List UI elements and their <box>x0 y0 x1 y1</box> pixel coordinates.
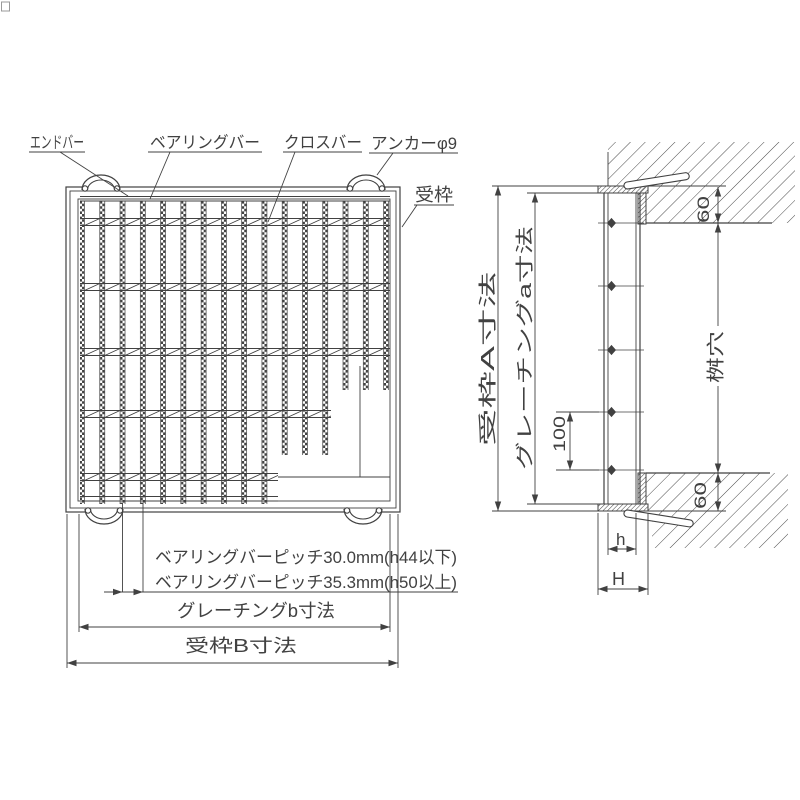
label-anchor: アンカーφ9 <box>371 135 457 153</box>
frame-outline <box>66 187 400 512</box>
dim-frame-b: 受枠B寸法 <box>185 636 297 656</box>
anchor-handle-icon <box>347 175 385 191</box>
label-frame: 受枠 <box>415 185 453 205</box>
anchor-handle-icon <box>344 508 382 524</box>
dim-grating-b: グレーチングb寸法 <box>177 601 335 621</box>
dim-frame-height: H <box>612 569 625 589</box>
dim-pit-opening: 桝穴 <box>706 331 726 383</box>
dim-frame-a: 受枠A寸法 <box>478 271 498 446</box>
note-pitch-small: ベアリングバーピッチ30.0mm(h44以下) <box>155 548 457 567</box>
dim-seat-bottom: 60 <box>691 482 710 509</box>
page-corner-mark <box>2 2 10 11</box>
grating-technical-drawing: エンドバー ベアリングバー クロスバー アンカーφ9 受枠 ベアリングバーピッチ… <box>0 0 800 800</box>
plan-dimensions: ベアリングバーピッチ30.0mm(h44以下) ベアリングバーピッチ35.3mm… <box>67 503 458 668</box>
section-view: 受枠A寸法 グレーチングa寸法 100 60 桝穴 60 h H <box>478 142 795 595</box>
label-cross-bar: クロスバー <box>284 133 362 152</box>
section-crossbar-marks <box>598 219 644 475</box>
dim-anchor-spacing: 100 <box>550 416 569 452</box>
dim-grating-a: グレーチングa寸法 <box>515 226 535 470</box>
label-bearing-bar: ベアリングバー <box>150 133 260 152</box>
anchor-handles <box>82 175 385 524</box>
grating-pattern <box>80 197 391 505</box>
label-end-bar: エンドバー <box>30 134 84 152</box>
anchor-handle-icon <box>82 175 120 191</box>
anchor-handle-icon <box>85 508 123 524</box>
dim-seat-top: 60 <box>694 196 713 223</box>
cutaway-edges <box>278 366 390 477</box>
note-pitch-large: ベアリングバーピッチ35.3mm(h50以上) <box>155 573 457 592</box>
plan-view: エンドバー ベアリングバー クロスバー アンカーφ9 受枠 ベアリングバーピッチ… <box>29 133 458 668</box>
